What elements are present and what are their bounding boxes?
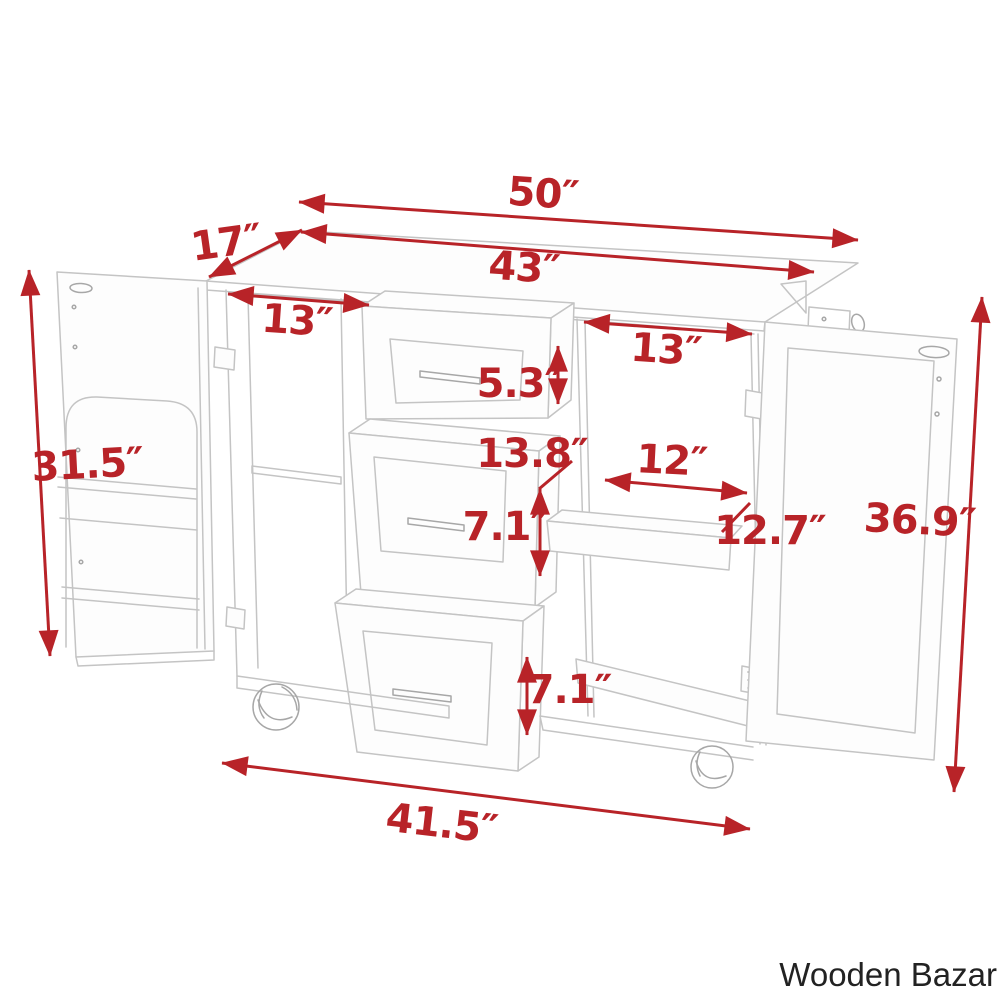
label-bottom-drawer: 7.1″ bbox=[527, 667, 612, 713]
label-shelf-depth: 12″ bbox=[635, 436, 708, 486]
label-left-height: 31.5″ bbox=[30, 439, 144, 491]
bottom-drawer bbox=[335, 589, 544, 771]
dimension-diagram: 50″ 17″ 43″ 13″ 13″ 5.3″ 13.8″ 12″ 7.1″ … bbox=[0, 0, 1000, 1000]
label-total-width: 50″ bbox=[506, 169, 580, 220]
dim-total-width-arrow bbox=[299, 202, 858, 240]
left-caster-wheel bbox=[253, 684, 299, 730]
left-door-hinge-bottom bbox=[226, 607, 245, 629]
label-top-drawer: 5.3″ bbox=[477, 361, 562, 407]
brand-watermark: Wooden Bazar bbox=[779, 956, 997, 993]
label-right-height: 36.9″ bbox=[863, 495, 977, 547]
label-countertop-width: 43″ bbox=[487, 243, 561, 294]
label-shelf-width: 12.7″ bbox=[714, 508, 826, 554]
label-drawer-section: 13.8″ bbox=[476, 431, 588, 477]
label-base-width: 41.5″ bbox=[383, 795, 499, 853]
label-depth: 17″ bbox=[188, 215, 264, 270]
label-right-opening: 13″ bbox=[629, 325, 703, 376]
label-left-opening: 13″ bbox=[260, 296, 334, 347]
interior-shelf bbox=[547, 510, 742, 570]
label-middle-drawer: 7.1″ bbox=[463, 504, 548, 550]
diagram-svg: 50″ 17″ 43″ 13″ 13″ 5.3″ 13.8″ 12″ 7.1″ … bbox=[0, 0, 1000, 1000]
right-caster-wheel bbox=[691, 746, 733, 788]
left-door-hinge-top bbox=[214, 347, 235, 370]
